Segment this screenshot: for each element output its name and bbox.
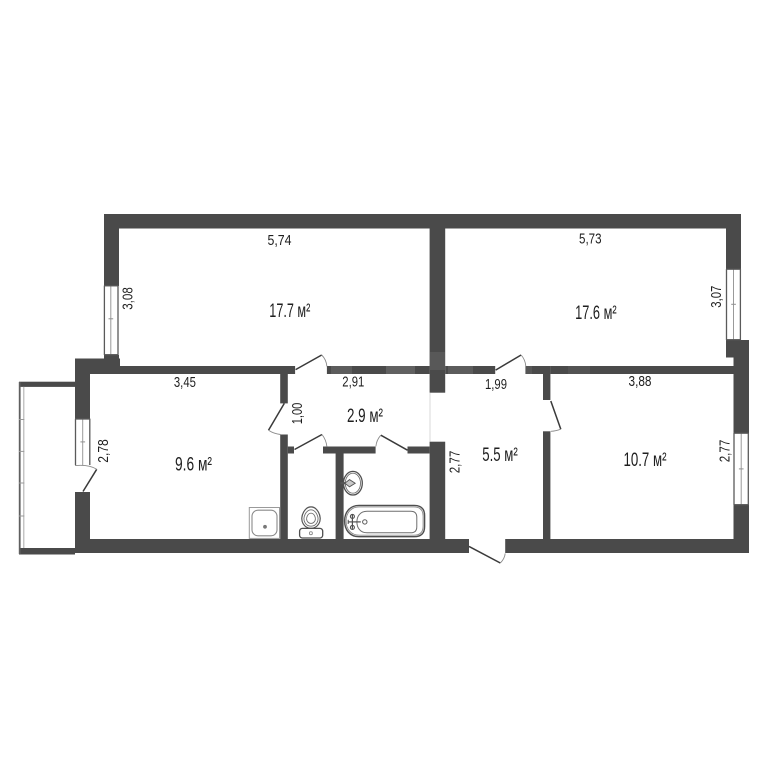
svg-text:2,77: 2,77 [448,451,464,474]
svg-text:2.9 м²: 2.9 м² [347,406,383,427]
svg-text:17.6 м²: 17.6 м² [575,303,617,324]
svg-text:3,07: 3,07 [709,286,725,308]
svg-text:2,77: 2,77 [718,440,734,463]
svg-text:5,73: 5,73 [579,232,602,248]
svg-text:17.7 м²: 17.7 м² [269,301,310,322]
svg-text:1,00: 1,00 [290,403,306,425]
svg-text:3,88: 3,88 [629,374,652,390]
svg-text:10.7 м²: 10.7 м² [624,450,667,471]
svg-text:1,99: 1,99 [485,377,507,393]
svg-text:5.5 м²: 5.5 м² [482,445,518,466]
svg-text:2,78: 2,78 [96,439,112,463]
svg-text:2,91: 2,91 [342,375,364,391]
svg-text:3,45: 3,45 [174,375,196,391]
svg-text:9.6 м²: 9.6 м² [175,455,212,476]
svg-text:5,74: 5,74 [268,233,292,249]
svg-text:3,08: 3,08 [121,287,137,310]
